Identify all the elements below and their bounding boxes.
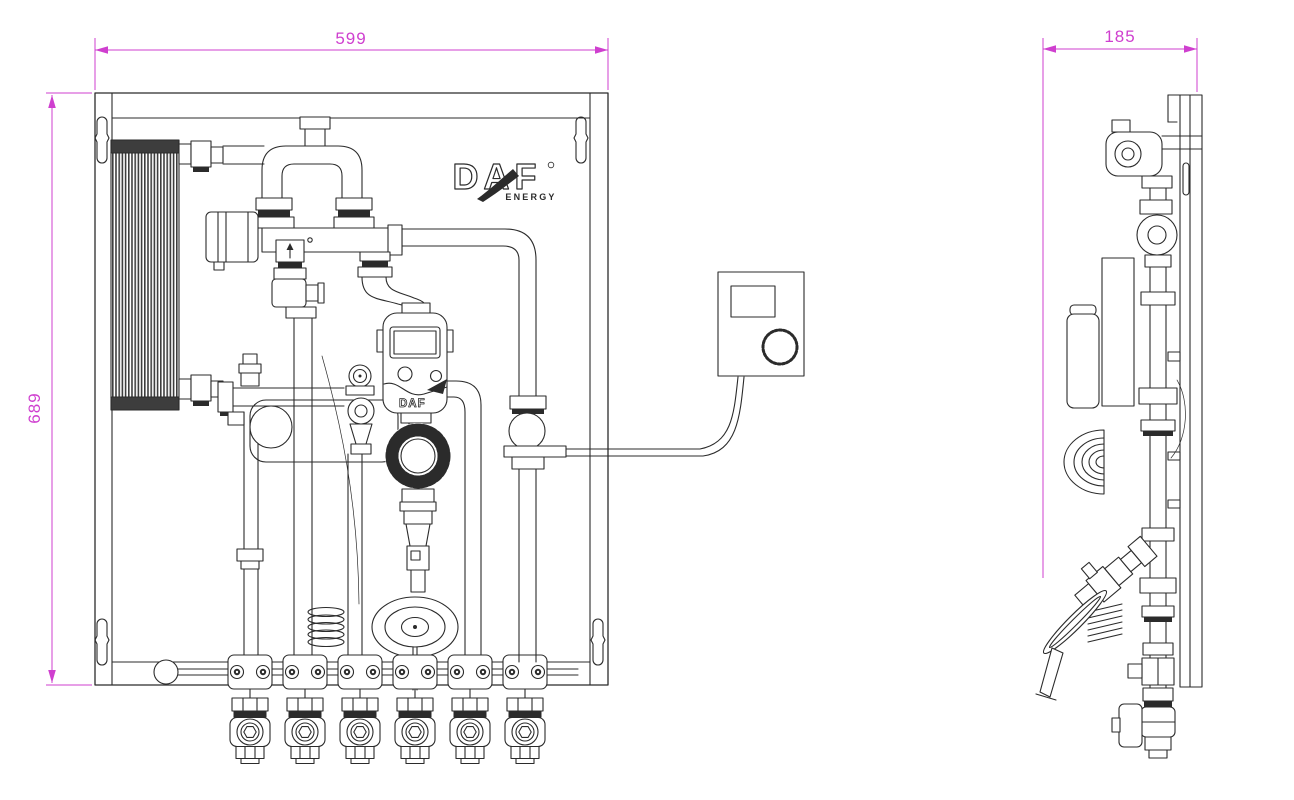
pump-motor-dome <box>1064 430 1104 494</box>
pump-brand-label: DAF <box>399 398 426 410</box>
front-view: DAF <box>95 93 804 764</box>
isolating-valve-sensor <box>504 396 566 662</box>
mounting-slot <box>95 117 109 163</box>
technical-drawing-canvas: DAF <box>0 0 1294 800</box>
port-ball-valve-5 <box>448 655 492 764</box>
dimension-front-width: 599 <box>95 29 608 90</box>
registered-mark-icon <box>548 162 554 168</box>
port-ball-valve-6 <box>503 655 547 764</box>
logo-sub-text: ENERGY <box>505 192 556 202</box>
drain-handle <box>154 660 178 684</box>
dim-label-width: 599 <box>335 29 366 48</box>
port-ball-valve-2 <box>283 655 327 764</box>
room-thermostat <box>718 272 804 376</box>
mounting-slot <box>591 619 605 665</box>
differential-spring <box>308 608 344 647</box>
port-ball-valve-3 <box>338 655 382 764</box>
port-ball-valve-4 <box>393 655 437 764</box>
dim-label-height: 689 <box>25 392 44 423</box>
mounting-slot <box>95 619 109 665</box>
hiu-technical-drawing: DAF <box>0 0 1294 800</box>
plate-heat-exchanger <box>111 140 223 410</box>
side-ball-valve <box>1112 658 1175 758</box>
dim-arrow-icon <box>595 46 608 54</box>
three-way-valve <box>346 365 374 662</box>
drain-cock <box>243 354 257 364</box>
mounting-slot <box>574 117 588 163</box>
return-pipework <box>218 354 398 662</box>
port-ball-valve-1 <box>228 655 272 764</box>
heat-meter <box>206 212 258 270</box>
pressure-gauge <box>250 406 292 448</box>
check-valve-assembly <box>272 240 324 662</box>
dim-arrow-icon <box>95 46 108 54</box>
side-view <box>1036 95 1202 758</box>
sensor-cable <box>566 377 744 456</box>
dim-arrow-icon <box>48 670 56 683</box>
dim-label-depth: 185 <box>1104 27 1135 46</box>
side-disc <box>1036 586 1111 700</box>
dim-arrow-icon <box>1184 45 1197 53</box>
daf-logo: DAF ENERGY <box>453 156 557 202</box>
side-pump-controller <box>1064 258 1134 494</box>
dim-arrow-icon <box>1043 45 1056 53</box>
dimension-front-height: 689 <box>25 93 92 685</box>
air-vent-cap <box>300 117 330 129</box>
dim-arrow-icon <box>48 95 56 108</box>
strainer-valve <box>385 423 451 592</box>
